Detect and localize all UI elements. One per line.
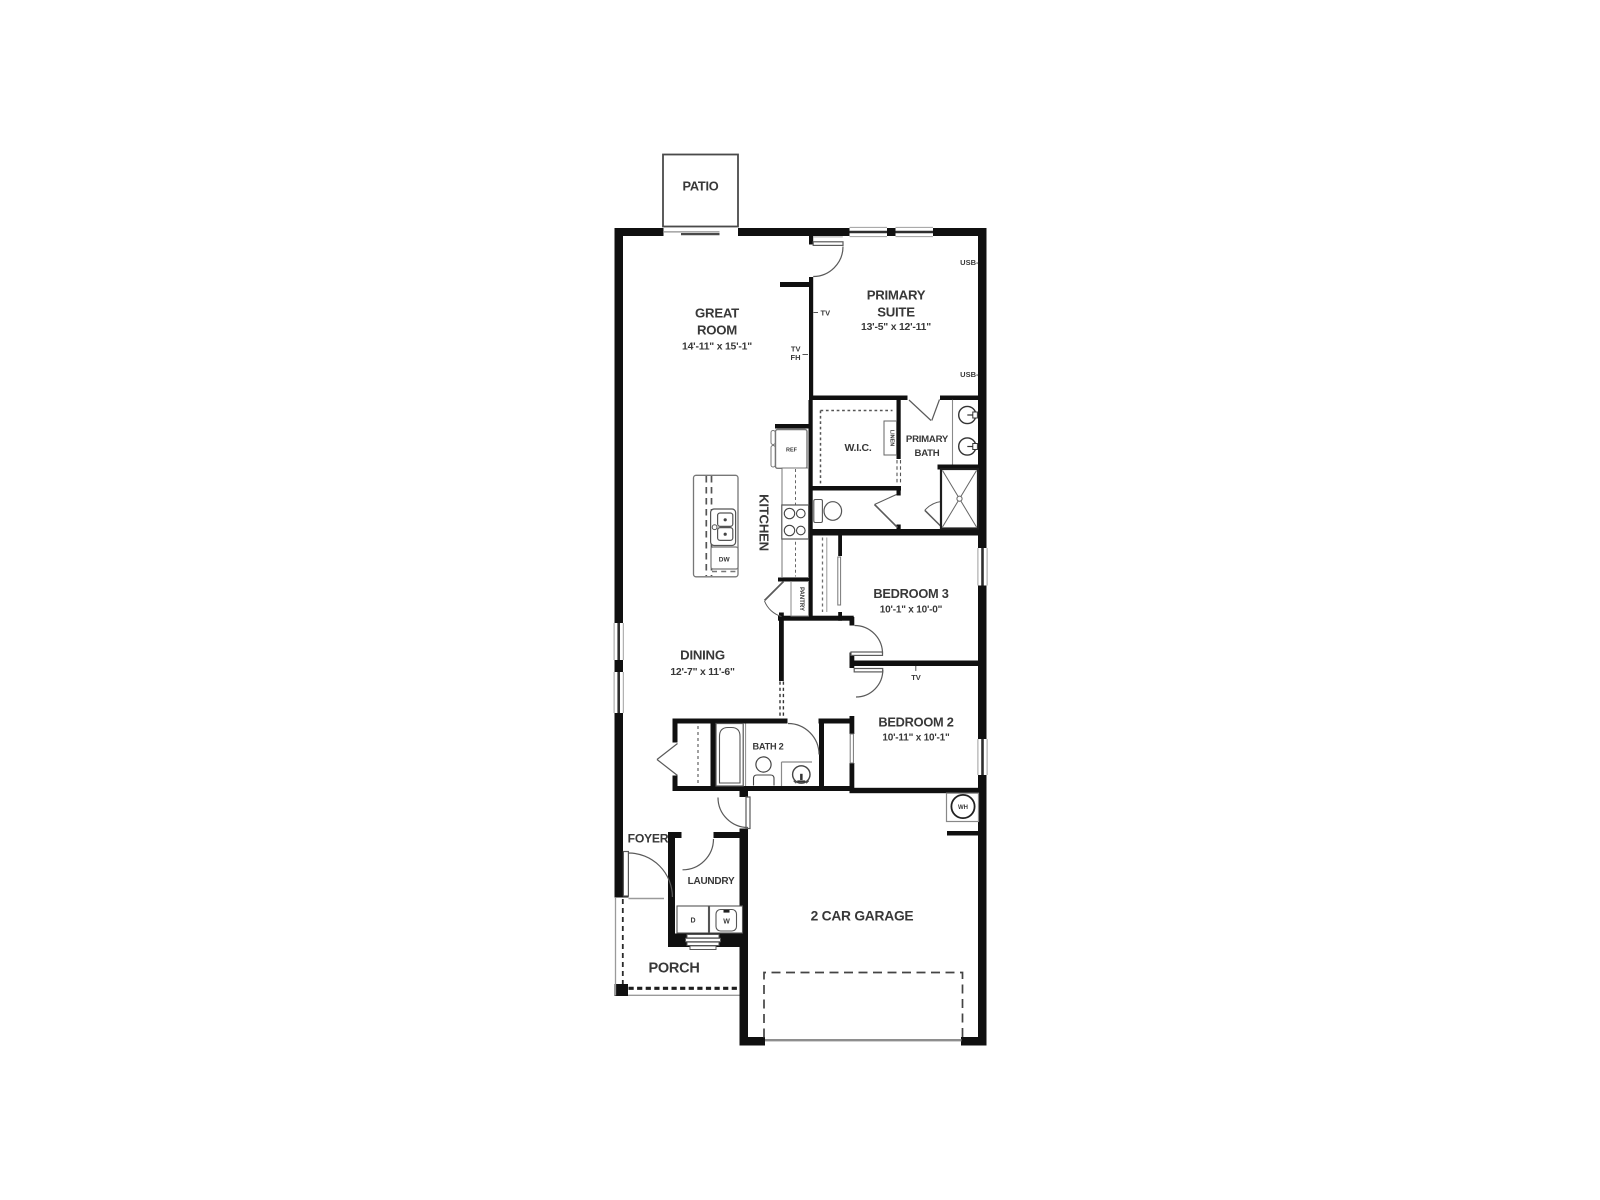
svg-text:W.I.C.: W.I.C. <box>844 442 871 454</box>
svg-text:2 CAR GARAGE: 2 CAR GARAGE <box>811 909 914 924</box>
svg-text:BATH: BATH <box>915 448 940 459</box>
svg-text:13'-5" x 12'-11": 13'-5" x 12'-11" <box>861 322 931 333</box>
svg-text:PORCH: PORCH <box>648 961 699 977</box>
svg-text:BEDROOM 2: BEDROOM 2 <box>878 715 953 730</box>
svg-text:DW: DW <box>719 557 731 564</box>
svg-text:REF: REF <box>786 448 798 454</box>
svg-text:LINEN: LINEN <box>889 430 895 447</box>
svg-text:10'-1" x 10'-0": 10'-1" x 10'-0" <box>880 605 943 616</box>
svg-text:10'-11" x 10'-1": 10'-11" x 10'-1" <box>882 733 950 744</box>
svg-text:BATH 2: BATH 2 <box>753 742 784 752</box>
svg-text:FOYER: FOYER <box>628 832 669 846</box>
svg-text:D: D <box>690 918 695 925</box>
svg-text:TV: TV <box>821 309 831 318</box>
svg-text:SUITE: SUITE <box>877 305 915 320</box>
svg-text:BEDROOM 3: BEDROOM 3 <box>873 586 948 601</box>
svg-text:W: W <box>723 919 730 926</box>
svg-text:PATIO: PATIO <box>683 179 719 194</box>
svg-text:PRIMARY: PRIMARY <box>906 434 949 445</box>
svg-text:USB-: USB- <box>960 370 979 379</box>
svg-text:TV: TV <box>911 673 921 682</box>
svg-text:ROOM: ROOM <box>697 323 737 338</box>
svg-text:KITCHEN: KITCHEN <box>757 494 772 551</box>
svg-text:GREAT: GREAT <box>695 306 739 321</box>
svg-text:14'-11" x 15'-1": 14'-11" x 15'-1" <box>682 342 752 353</box>
svg-text:FH: FH <box>791 353 801 362</box>
svg-text:PANTRY: PANTRY <box>798 587 804 611</box>
svg-text:LAUNDRY: LAUNDRY <box>688 876 735 887</box>
svg-text:USB-: USB- <box>960 258 979 267</box>
svg-text:PRIMARY: PRIMARY <box>867 288 926 303</box>
svg-text:WH: WH <box>958 805 968 811</box>
svg-text:12'-7" x 11'-6": 12'-7" x 11'-6" <box>670 667 735 678</box>
svg-text:DINING: DINING <box>680 648 725 663</box>
